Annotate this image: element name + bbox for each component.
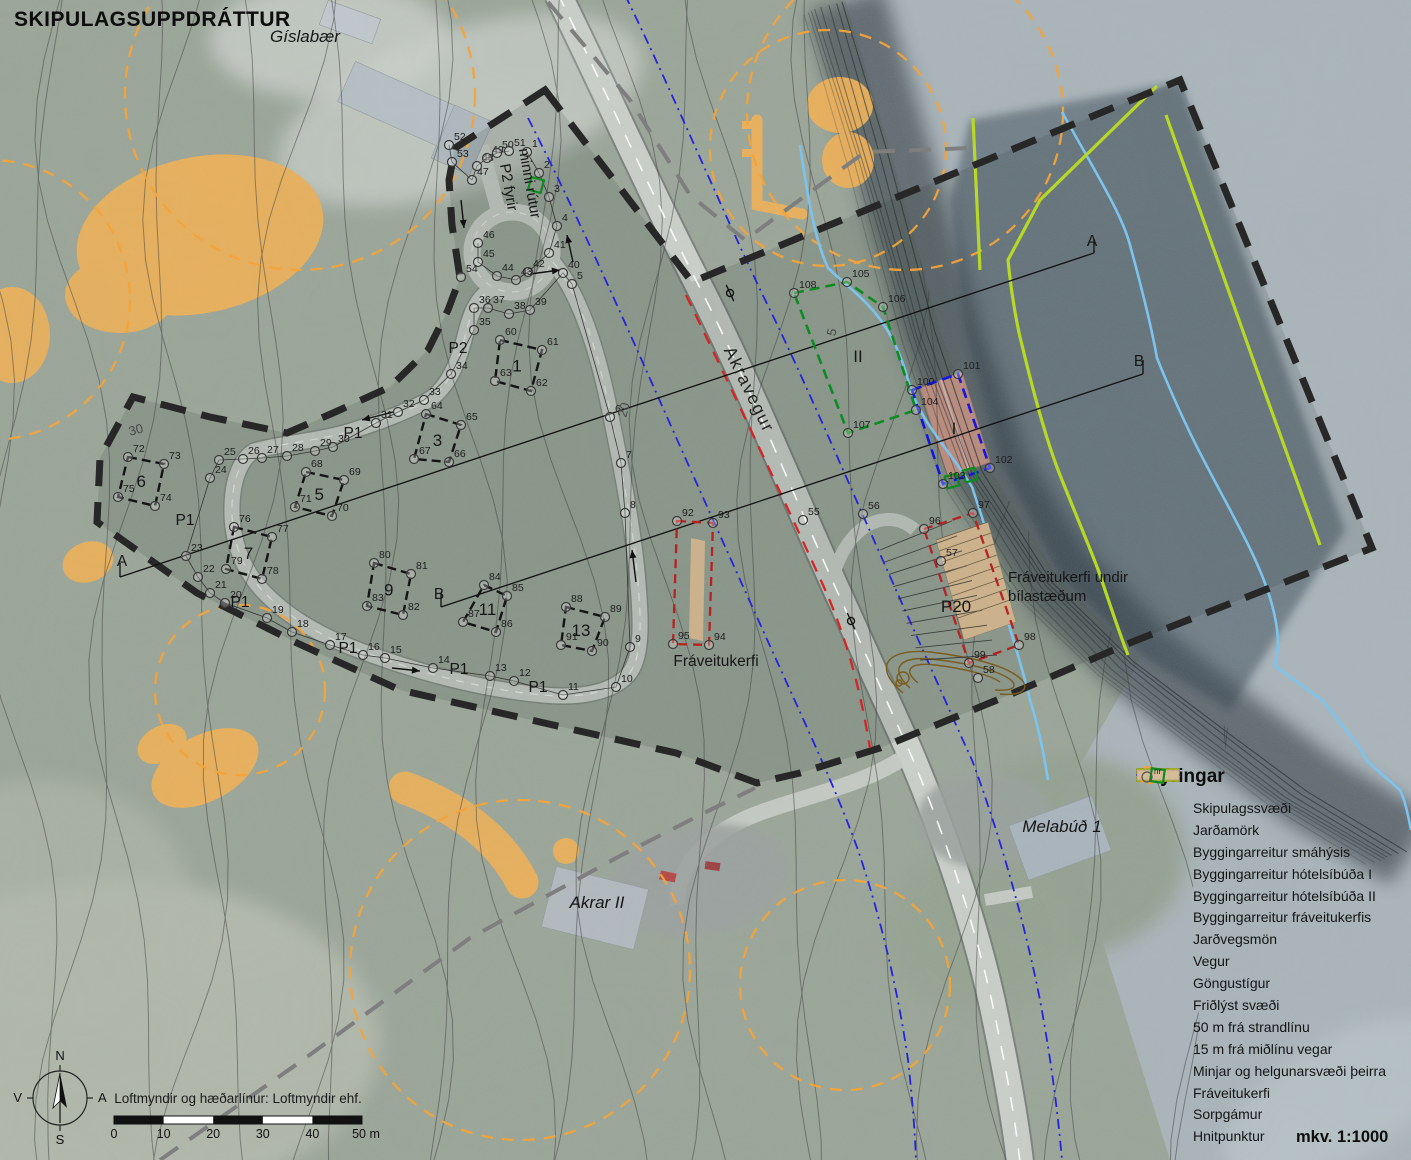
svg-text:10: 10 — [157, 1127, 171, 1141]
legend-item-3: Byggingarreitur smáhýsis — [1133, 841, 1386, 863]
svg-text:27: 27 — [267, 444, 279, 456]
svg-text:P1: P1 — [231, 594, 250, 611]
legend-item-label: Minjar og helgunarsvæði þeirra — [1193, 1063, 1386, 1079]
svg-text:13: 13 — [572, 621, 591, 640]
svg-text:83: 83 — [372, 592, 384, 604]
svg-text:43: 43 — [521, 266, 533, 278]
svg-text:82: 82 — [408, 601, 420, 613]
svg-text:76: 76 — [239, 513, 251, 525]
svg-text:42: 42 — [533, 258, 545, 270]
svg-text:55: 55 — [808, 506, 820, 518]
svg-text:24: 24 — [215, 464, 227, 476]
svg-text:28: 28 — [292, 442, 304, 454]
svg-text:12: 12 — [519, 667, 531, 679]
svg-text:72: 72 — [133, 443, 145, 455]
svg-text:bílastæðum: bílastæðum — [1008, 588, 1086, 605]
svg-text:54: 54 — [466, 263, 478, 275]
legend-item-8: Vegur — [1133, 950, 1386, 972]
svg-text:102: 102 — [995, 454, 1013, 466]
legend-item-7: Jarðvegsmön — [1133, 928, 1386, 950]
svg-text:4: 4 — [562, 212, 568, 224]
svg-text:53: 53 — [457, 148, 469, 160]
svg-text:21: 21 — [215, 579, 227, 591]
svg-text:A: A — [117, 553, 128, 570]
legend-item-13: Minjar og helgunarsvæði þeirra — [1133, 1060, 1386, 1082]
svg-text:P1: P1 — [176, 512, 195, 529]
svg-text:96: 96 — [929, 515, 941, 527]
svg-text:1: 1 — [532, 138, 538, 150]
svg-text:95: 95 — [678, 630, 690, 642]
svg-text:6: 6 — [137, 472, 146, 491]
svg-text:P2: P2 — [449, 340, 468, 357]
svg-text:0: 0 — [111, 1127, 118, 1141]
svg-text:3: 3 — [554, 183, 560, 195]
svg-text:67: 67 — [419, 445, 431, 457]
svg-text:103: 103 — [948, 470, 966, 482]
legend-item-1: Skipulagssvæði — [1133, 797, 1386, 819]
svg-text:8: 8 — [630, 499, 636, 511]
svg-text:58: 58 — [983, 664, 995, 676]
legend-item-label: Skipulagssvæði — [1193, 800, 1291, 816]
svg-text:108: 108 — [799, 279, 817, 291]
svg-text:P20: P20 — [941, 597, 971, 616]
svg-text:V: V — [13, 1090, 22, 1105]
svg-text:75: 75 — [123, 483, 135, 495]
map-scale-text: mkv. 1:1000 — [1296, 1128, 1388, 1147]
svg-text:63: 63 — [500, 367, 512, 379]
legend-item-14: Fráveitukerfi — [1133, 1082, 1386, 1104]
svg-text:37: 37 — [493, 294, 505, 306]
svg-text:nr: nr — [1154, 767, 1161, 776]
svg-text:P1: P1 — [529, 679, 548, 696]
legend-item-label: Hnitpunktur — [1193, 1128, 1265, 1144]
legend-item-label: Byggingarreitur hótelsíbúða I — [1193, 866, 1372, 882]
svg-text:79: 79 — [231, 555, 243, 567]
svg-text:61: 61 — [547, 336, 559, 348]
legend-item-2: Jarðamörk — [1133, 819, 1386, 841]
svg-text:39: 39 — [535, 296, 547, 308]
svg-text:Akrar II: Akrar II — [569, 893, 625, 912]
svg-text:13: 13 — [495, 662, 507, 674]
svg-text:9: 9 — [384, 581, 393, 600]
svg-text:40: 40 — [568, 259, 580, 271]
svg-text:41: 41 — [554, 239, 566, 251]
svg-text:Loftmyndir og hæðarlínur: Loft: Loftmyndir og hæðarlínur: Loftmyndir ehf… — [114, 1091, 362, 1106]
legend: Skýringar SkipulagssvæðiJarðamörkBygging… — [1133, 766, 1386, 1147]
planning-map: 1234567891011121314151617181920212223242… — [0, 0, 1411, 1160]
legend-item-11: 50 m frá strandlínu — [1133, 1016, 1386, 1038]
svg-text:50 m: 50 m — [352, 1127, 380, 1141]
legend-item-label: 15 m frá miðlínu vegar — [1193, 1041, 1332, 1057]
legend-rows: SkipulagssvæðiJarðamörkByggingarreitur s… — [1133, 797, 1386, 1147]
svg-text:90: 90 — [597, 637, 609, 649]
legend-item-label: Friðlýst svæði — [1193, 997, 1279, 1013]
legend-item-15: Sorpgámur — [1133, 1103, 1386, 1125]
svg-text:69: 69 — [349, 466, 361, 478]
page-title: SKIPULAGSUPPDRÁTTUR — [14, 8, 291, 32]
svg-text:33: 33 — [429, 386, 441, 398]
svg-text:11: 11 — [568, 681, 579, 693]
svg-text:40: 40 — [305, 1127, 319, 1141]
svg-text:57: 57 — [946, 547, 958, 559]
svg-text:1: 1 — [512, 357, 521, 376]
svg-text:73: 73 — [169, 450, 181, 462]
legend-item-label: Jarðamörk — [1193, 822, 1259, 838]
svg-text:86: 86 — [501, 618, 513, 630]
svg-text:81: 81 — [416, 560, 428, 572]
svg-text:25: 25 — [224, 446, 236, 458]
svg-text:56: 56 — [868, 500, 880, 512]
svg-text:N: N — [55, 1048, 64, 1063]
svg-text:18: 18 — [297, 618, 309, 630]
svg-text:88: 88 — [571, 593, 583, 605]
svg-text:Fráveitukerfi: Fráveitukerfi — [673, 653, 758, 670]
svg-text:23: 23 — [191, 542, 203, 554]
svg-text:93: 93 — [718, 509, 730, 521]
svg-text:14: 14 — [438, 654, 450, 666]
svg-text:P1: P1 — [450, 661, 469, 678]
svg-text:31: 31 — [381, 409, 393, 421]
svg-text:92: 92 — [682, 507, 694, 519]
svg-text:45: 45 — [483, 248, 495, 260]
legend-item-label: Göngustígur — [1193, 975, 1270, 991]
svg-text:107: 107 — [853, 419, 871, 431]
svg-text:11: 11 — [479, 600, 497, 619]
legend-item-12: 15 m frá miðlínu vegar — [1133, 1038, 1386, 1060]
legend-item-label: Fráveitukerfi — [1193, 1085, 1270, 1101]
legend-item-6: Byggingarreitur fráveitukerfis — [1133, 906, 1386, 928]
svg-text:10: 10 — [621, 673, 633, 685]
svg-text:19: 19 — [272, 604, 284, 616]
svg-text:2: 2 — [544, 159, 550, 171]
svg-text:71: 71 — [300, 493, 312, 505]
svg-text:35: 35 — [479, 316, 491, 328]
svg-text:60: 60 — [505, 326, 517, 338]
svg-text:78: 78 — [267, 565, 279, 577]
svg-text:104: 104 — [921, 396, 939, 408]
svg-text:34: 34 — [456, 360, 468, 372]
svg-text:84: 84 — [489, 571, 501, 583]
svg-text:S: S — [56, 1132, 65, 1147]
svg-text:80: 80 — [379, 549, 391, 561]
svg-text:22: 22 — [203, 563, 215, 575]
svg-text:74: 74 — [160, 492, 172, 504]
svg-text:30: 30 — [256, 1127, 270, 1141]
svg-text:5: 5 — [577, 270, 583, 282]
svg-text:100: 100 — [917, 376, 935, 388]
svg-text:Fráveitukerfi undir: Fráveitukerfi undir — [1008, 569, 1128, 586]
svg-text:64: 64 — [431, 400, 443, 412]
legend-item-9: Göngustígur — [1133, 972, 1386, 994]
svg-text:98: 98 — [1024, 631, 1036, 643]
svg-text:70: 70 — [337, 502, 349, 514]
svg-text:7: 7 — [626, 449, 632, 461]
svg-text:89: 89 — [610, 603, 622, 615]
legend-item-label: Byggingarreitur fráveitukerfis — [1193, 909, 1371, 925]
svg-text:P1: P1 — [339, 640, 358, 657]
svg-text:105: 105 — [852, 268, 870, 280]
svg-text:106: 106 — [888, 293, 906, 305]
svg-text:44: 44 — [502, 262, 514, 274]
svg-text:68: 68 — [311, 458, 323, 470]
svg-text:Melabúð 1: Melabúð 1 — [1022, 817, 1101, 836]
svg-text:B: B — [1134, 353, 1144, 370]
legend-item-label: Sorpgámur — [1193, 1106, 1262, 1122]
legend-item-label: Byggingarreitur smáhýsis — [1193, 844, 1350, 860]
legend-item-label: Vegur — [1193, 953, 1230, 969]
svg-text:3: 3 — [433, 431, 442, 450]
svg-text:15: 15 — [390, 644, 402, 656]
svg-text:A: A — [98, 1090, 107, 1105]
svg-text:16: 16 — [368, 641, 380, 653]
legend-item-label: Byggingarreitur hótelsíbúða II — [1193, 888, 1376, 904]
svg-text:5: 5 — [315, 485, 324, 504]
svg-text:46: 46 — [483, 229, 495, 241]
svg-text:101: 101 — [963, 360, 981, 372]
svg-text:I: I — [952, 419, 957, 438]
legend-item-4: Byggingarreitur hótelsíbúða I — [1133, 863, 1386, 885]
svg-text:P1: P1 — [344, 425, 363, 442]
svg-text:38: 38 — [514, 300, 526, 312]
svg-text:52: 52 — [454, 131, 466, 143]
svg-text:32: 32 — [403, 398, 415, 410]
legend-item-label: Jarðvegsmön — [1193, 931, 1277, 947]
svg-text:66: 66 — [454, 448, 466, 460]
svg-text:94: 94 — [714, 631, 726, 643]
svg-text:II: II — [853, 347, 862, 366]
svg-text:A: A — [1087, 233, 1098, 250]
legend-item-5: Byggingarreitur hótelsíbúða II — [1133, 885, 1386, 907]
svg-text:7: 7 — [244, 544, 253, 563]
svg-text:85: 85 — [512, 582, 524, 594]
legend-item-label: 50 m frá strandlínu — [1193, 1019, 1310, 1035]
svg-text:99: 99 — [974, 649, 986, 661]
svg-text:97: 97 — [978, 499, 990, 511]
legend-item-10: Friðlýst svæði — [1133, 994, 1386, 1016]
svg-text:77: 77 — [277, 523, 289, 535]
svg-text:B: B — [434, 586, 444, 603]
svg-text:65: 65 — [466, 411, 478, 423]
svg-text:9: 9 — [635, 633, 641, 645]
svg-text:20: 20 — [206, 1127, 220, 1141]
svg-text:62: 62 — [536, 377, 548, 389]
